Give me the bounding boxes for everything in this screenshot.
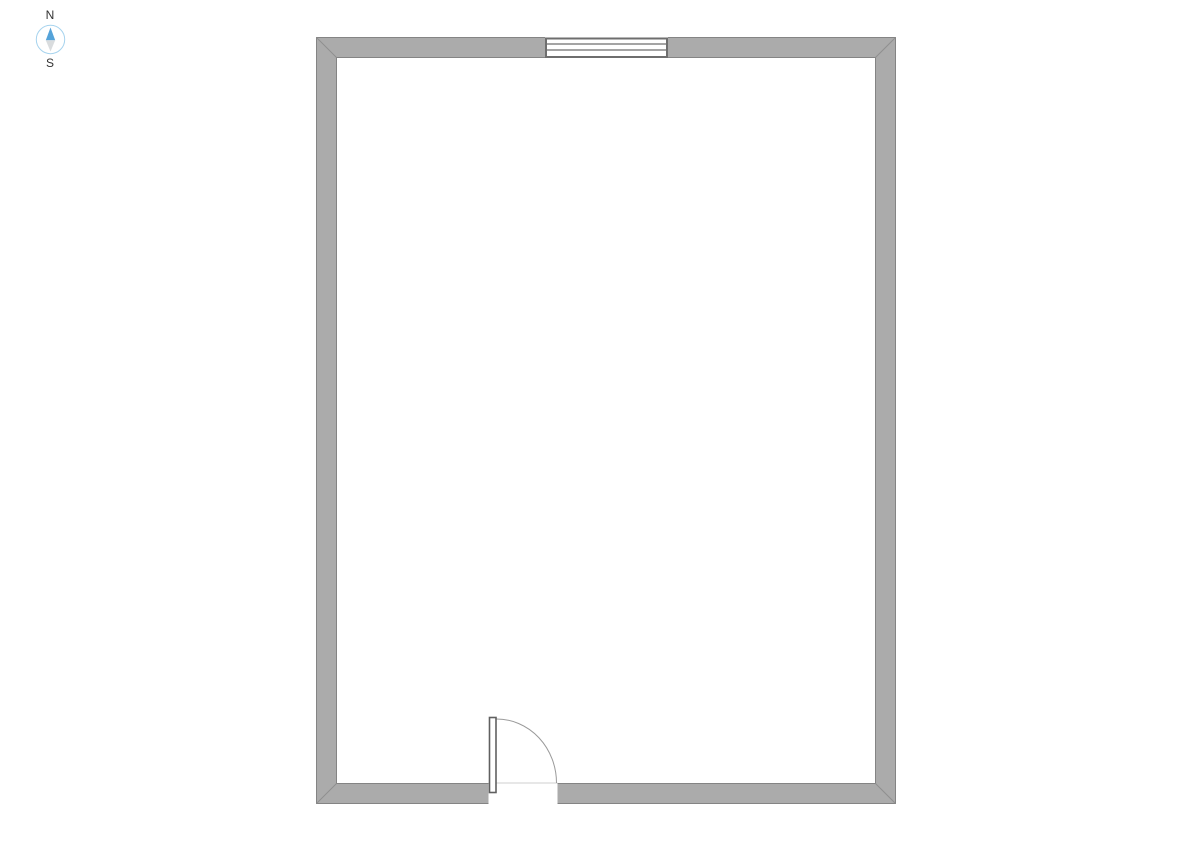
wall-corner-miters	[317, 38, 896, 804]
door-opening	[489, 781, 558, 805]
compass-rose-icon	[35, 24, 66, 55]
compass-south-label: S	[46, 57, 54, 70]
floorplan	[316, 37, 896, 805]
compass-rose: N S	[34, 9, 66, 70]
door[interactable]	[489, 718, 558, 806]
window-frame-icon	[546, 39, 667, 58]
door-swing-arc-icon	[497, 719, 557, 783]
compass-north-label: N	[46, 9, 55, 22]
window[interactable]	[545, 37, 668, 58]
door-leaf-icon	[490, 718, 497, 793]
room-walls[interactable]	[317, 38, 896, 804]
